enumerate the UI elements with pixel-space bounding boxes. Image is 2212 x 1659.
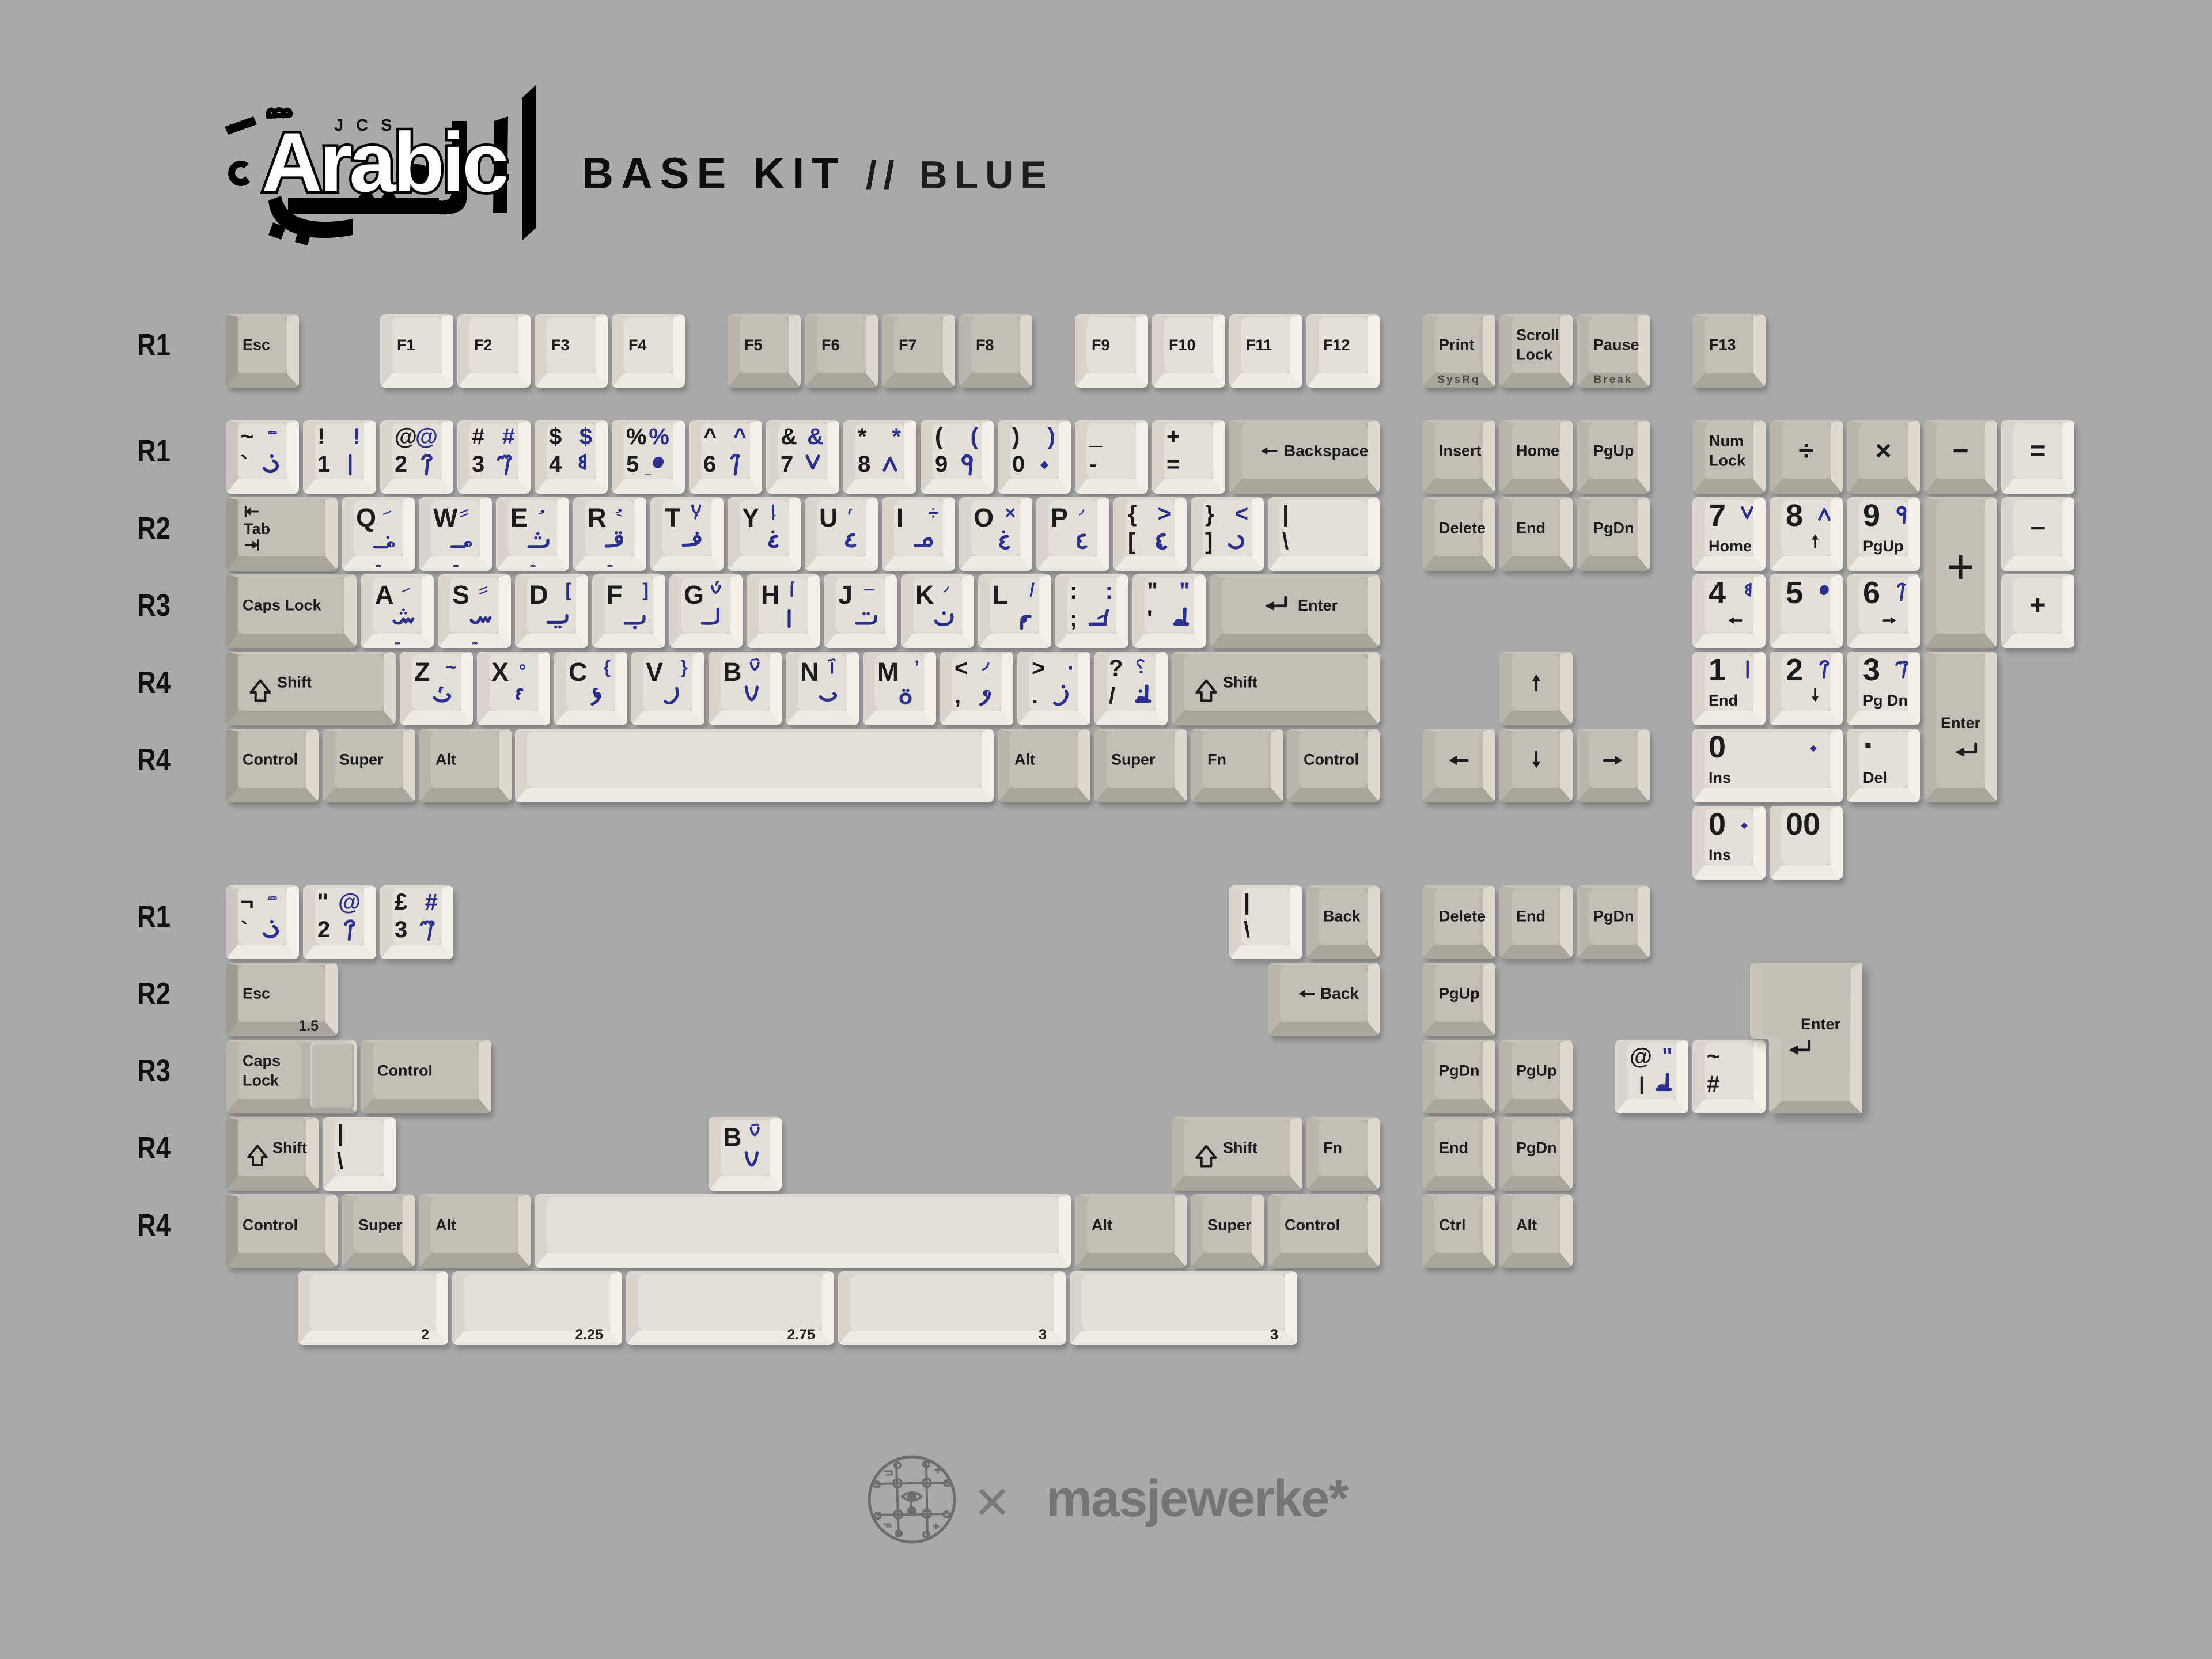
svg-text:Arabic: Arabic <box>262 115 506 209</box>
svg-text:Enter: Enter <box>1801 1016 1841 1033</box>
